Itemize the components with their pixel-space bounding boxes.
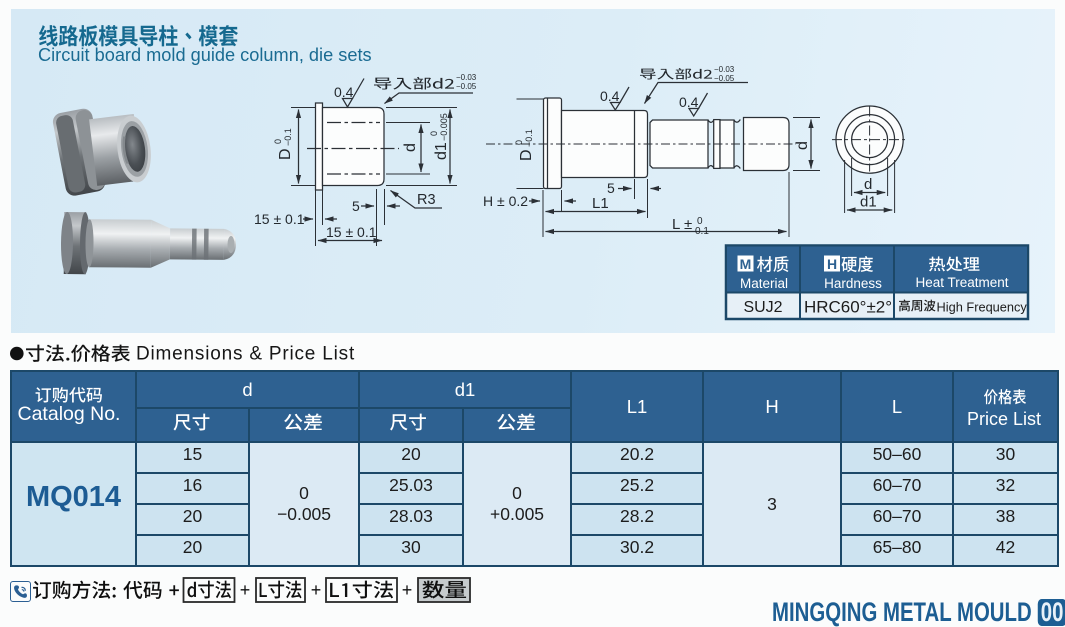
svg-text:M: M xyxy=(740,256,752,272)
svg-text:Price List: Price List xyxy=(967,409,1041,429)
svg-text:SUJ2: SUJ2 xyxy=(743,299,782,316)
svg-text:H: H xyxy=(827,256,837,272)
svg-text:+: + xyxy=(240,580,251,600)
svg-text:Material: Material xyxy=(740,276,788,291)
svg-text:Hardness: Hardness xyxy=(824,276,882,291)
svg-text:Catalog No.: Catalog No. xyxy=(18,403,121,425)
svg-text:Dimensions & Price List: Dimensions & Price List xyxy=(136,344,355,365)
svg-text:HRC60°±2°: HRC60°±2° xyxy=(804,298,892,317)
svg-text:High Frequency: High Frequency xyxy=(937,300,1028,315)
svg-text:+: + xyxy=(311,580,322,600)
svg-text:+: + xyxy=(402,580,413,600)
svg-text:Heat Treatment: Heat Treatment xyxy=(915,275,1008,290)
